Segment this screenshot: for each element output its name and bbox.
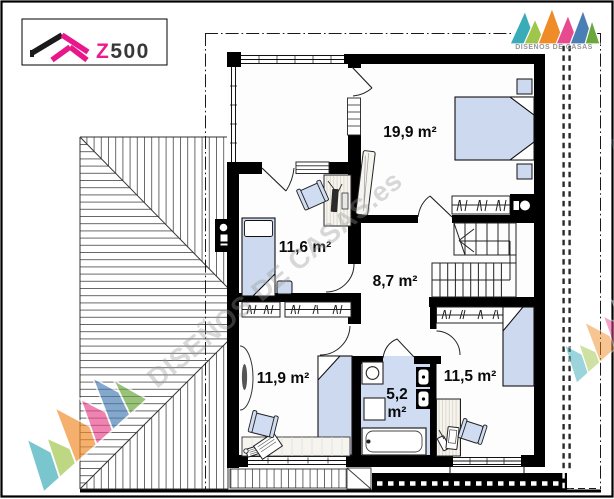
svg-text:11,9 m²: 11,9 m² xyxy=(257,370,310,387)
svg-text:11,5 m²: 11,5 m² xyxy=(444,368,497,385)
svg-text:19,9 m²: 19,9 m² xyxy=(383,124,436,141)
svg-text:5,2: 5,2 xyxy=(386,386,408,403)
svg-text:m²: m² xyxy=(388,404,407,421)
svg-text:DISEÑOS DE CASAS: DISEÑOS DE CASAS xyxy=(515,42,593,51)
svg-text:Z500: Z500 xyxy=(96,40,150,63)
svg-text:8,7 m²: 8,7 m² xyxy=(373,273,418,290)
